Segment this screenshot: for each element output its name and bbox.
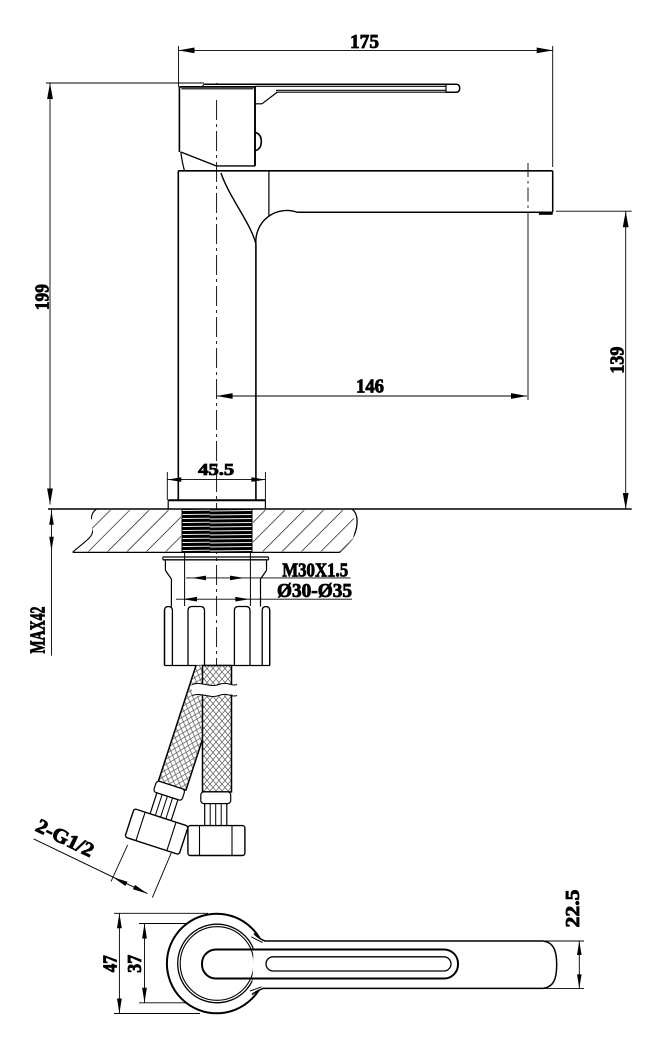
- svg-text:45.5: 45.5: [198, 460, 234, 479]
- svg-text:Ø30-Ø35: Ø30-Ø35: [277, 580, 352, 602]
- svg-text:47: 47: [100, 955, 122, 972]
- svg-text:M30X1.5: M30X1.5: [282, 559, 348, 581]
- svg-text:MAX42: MAX42: [25, 607, 49, 654]
- svg-text:139: 139: [607, 347, 629, 374]
- svg-text:175: 175: [350, 31, 379, 53]
- svg-text:146: 146: [356, 376, 384, 398]
- svg-text:37: 37: [124, 955, 146, 973]
- svg-text:199: 199: [31, 284, 53, 310]
- svg-text:22.5: 22.5: [562, 890, 584, 928]
